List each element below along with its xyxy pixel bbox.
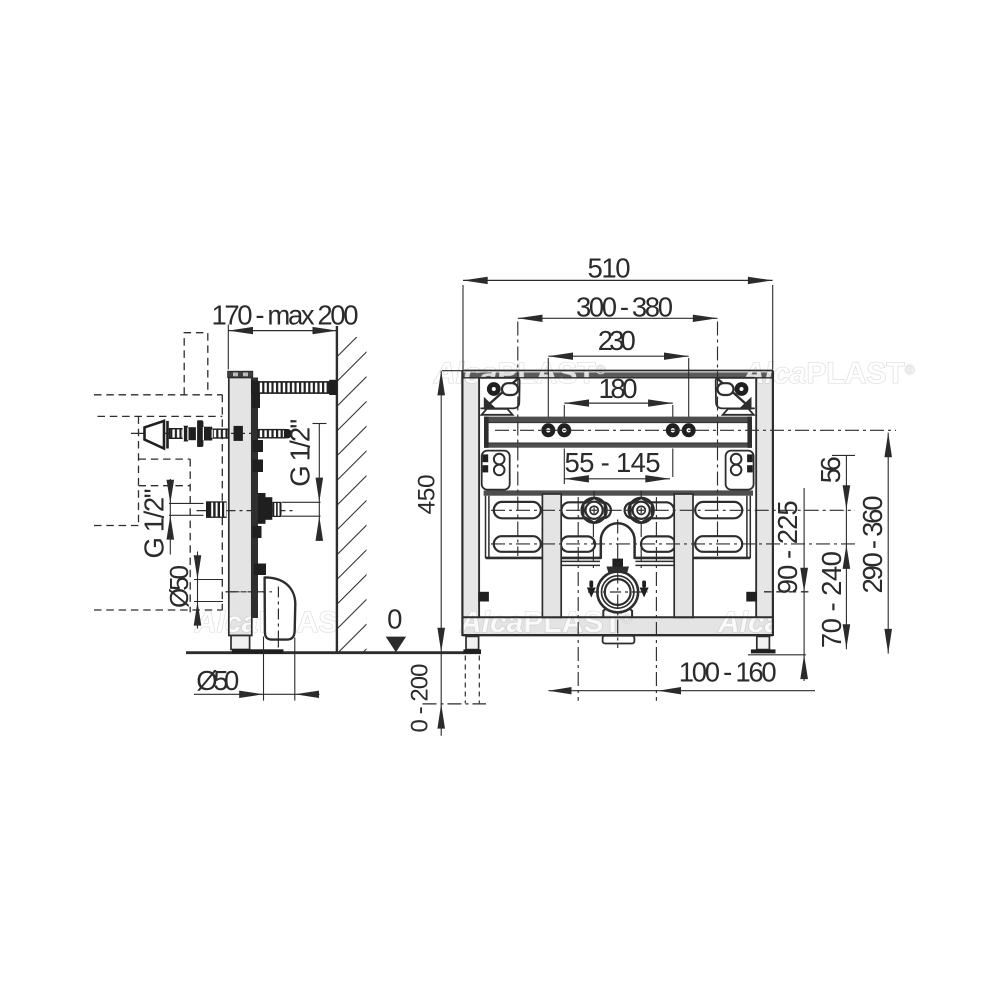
svg-text:Ø50: Ø50 — [196, 665, 239, 696]
svg-text:170 - max 200: 170 - max 200 — [212, 300, 359, 331]
svg-text:55 - 145: 55 - 145 — [565, 447, 661, 478]
svg-text:0: 0 — [387, 604, 402, 635]
svg-text:180: 180 — [599, 373, 638, 404]
svg-text:510: 510 — [588, 253, 631, 284]
svg-text:450: 450 — [414, 474, 441, 514]
svg-text:100 - 160: 100 - 160 — [679, 657, 777, 688]
svg-text:70 - 240: 70 - 240 — [816, 551, 847, 648]
svg-text:230: 230 — [598, 325, 636, 356]
svg-text:Ø50: Ø50 — [164, 565, 194, 608]
svg-text:90 - 225: 90 - 225 — [772, 500, 803, 594]
svg-text:G 1/2": G 1/2" — [139, 489, 170, 559]
svg-text:0 - 200: 0 - 200 — [407, 664, 434, 733]
svg-text:G 1/2": G 1/2" — [285, 419, 316, 487]
svg-text:AlcaPLAST®: AlcaPLAST® — [742, 357, 915, 390]
svg-text:56: 56 — [815, 456, 846, 483]
svg-text:290 - 360: 290 - 360 — [857, 496, 888, 594]
